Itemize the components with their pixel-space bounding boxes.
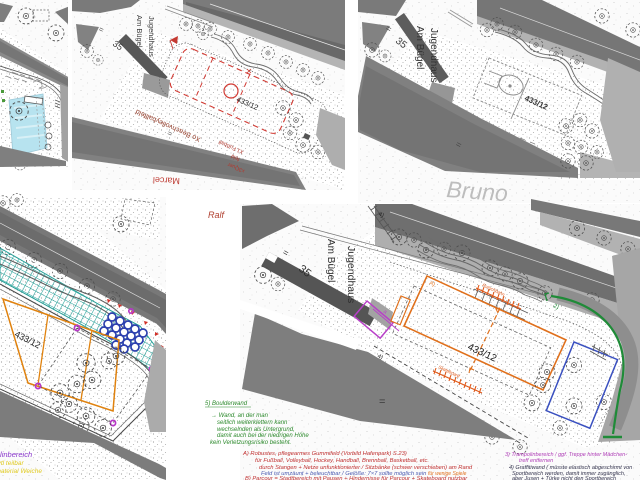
svg-text:5) Trampolinbereich: 5) Trampolinbereich [0, 450, 32, 459]
svg-text:Ralf: Ralf [208, 210, 226, 220]
svg-text:seitlich weiterklettern kann: seitlich weiterklettern kann [217, 420, 288, 426]
svg-text:Jugendhaus: Jugendhaus [345, 246, 357, 303]
svg-text:Bruno: Bruno [446, 176, 509, 206]
svg-text:aber Jusen + Türke nicht den S: aber Jusen + Türke nicht den Sportbereic… [512, 476, 616, 480]
svg-text:Am Bügel: Am Bügel [135, 15, 144, 48]
svg-text:Jugendhaus: Jugendhaus [428, 28, 439, 83]
svg-text:Marcel: Marcel [153, 175, 180, 186]
svg-text:=: = [379, 396, 385, 408]
svg-text:treff entfernen: treff entfernen [519, 458, 553, 464]
svg-text:→ Wand, an der man: → Wand, an der man [211, 413, 269, 419]
svg-text:Am Bügel: Am Bügel [325, 239, 336, 282]
svg-text:evtl teilbar: evtl teilbar [0, 460, 24, 467]
svg-text:Feld ist umzäunt + beleuchtbar: Feld ist umzäunt + beleuchtbar / Gelöße:… [261, 471, 426, 477]
svg-text:für wenige Spiele: für wenige Spiele [428, 471, 467, 477]
svg-text:für Fußball, Volleyball, Hocke: für Fußball, Volleyball, Hockey, Handbal… [255, 458, 429, 464]
svg-text:Jugendhaus: Jugendhaus [147, 16, 156, 57]
svg-text:damit auch bei der niedrigen H: damit auch bei der niedrigen Höhe [217, 433, 309, 439]
svg-text:kein Verletzungsrisiko besteht: kein Verletzungsrisiko besteht. [210, 440, 291, 446]
svg-text:A) Robustes, pflegearmes Gummi: A) Robustes, pflegearmes Gummifeld (Vorb… [242, 451, 407, 457]
svg-text:Am Bügel: Am Bügel [414, 26, 425, 69]
svg-text:Fallmaterial Weiche: Fallmaterial Weiche [0, 468, 42, 475]
svg-text:5) Boulderwand: 5) Boulderwand [205, 401, 248, 407]
